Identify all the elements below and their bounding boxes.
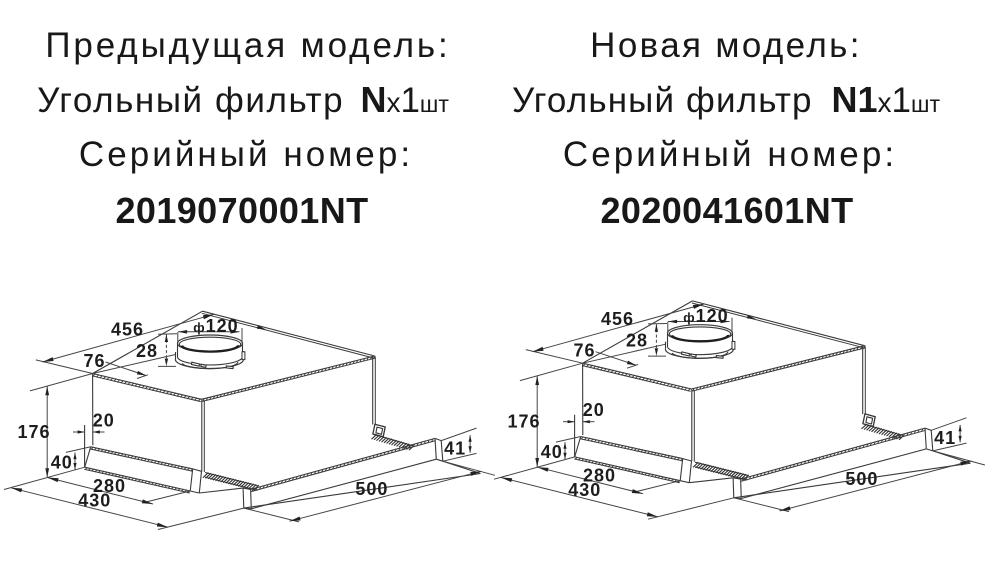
svg-text:456: 456 [111, 319, 144, 339]
svg-text:ф120: ф120 [193, 316, 238, 336]
svg-text:430: 430 [78, 491, 111, 511]
svg-text:28: 28 [136, 341, 158, 361]
svg-text:40: 40 [51, 452, 73, 472]
svg-text:76: 76 [83, 351, 105, 371]
svg-text:20: 20 [93, 411, 115, 431]
svg-text:500: 500 [355, 479, 388, 499]
svg-text:41: 41 [444, 439, 466, 459]
svg-text:176: 176 [17, 422, 50, 442]
